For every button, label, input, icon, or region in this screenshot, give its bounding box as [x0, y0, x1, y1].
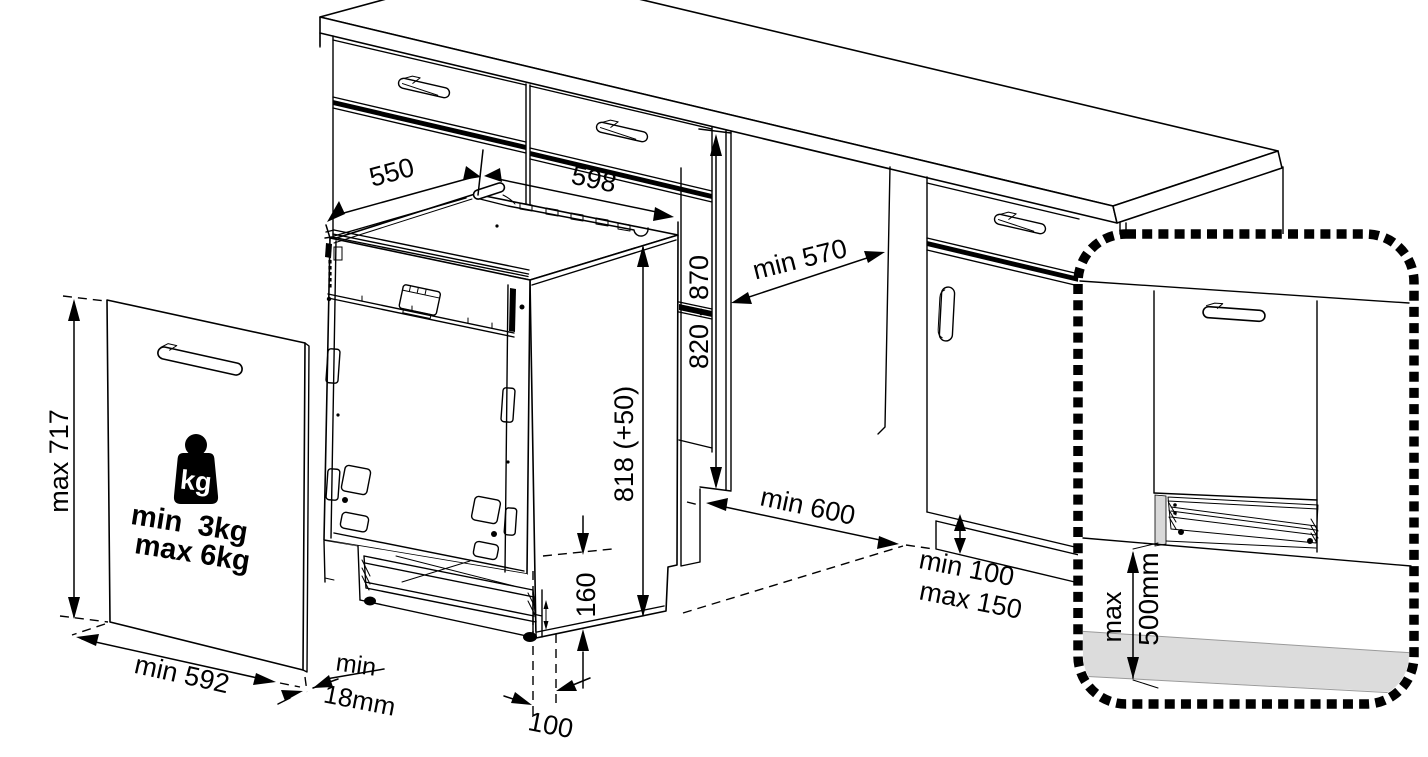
svg-text:818 (+50): 818 (+50) [609, 386, 639, 502]
svg-text:min: min [334, 648, 378, 681]
svg-text:max: max [1097, 591, 1127, 643]
svg-text:max 717: max 717 [44, 409, 74, 513]
svg-text:500mm: 500mm [1133, 552, 1164, 645]
svg-text:820 - 870: 820 - 870 [684, 255, 714, 369]
svg-text:kg: kg [179, 464, 213, 497]
svg-text:160: 160 [571, 572, 601, 617]
